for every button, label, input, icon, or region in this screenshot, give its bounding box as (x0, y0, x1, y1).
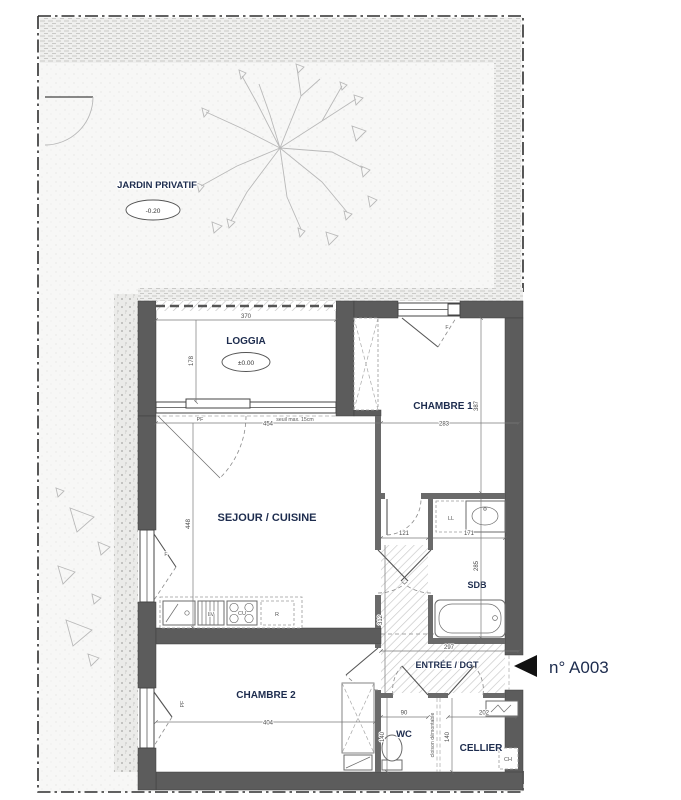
demountable-partition-note: cloison démontable (430, 713, 436, 758)
sejour-window-tag: F (164, 552, 167, 558)
chambre2-label: CHAMBRE 2 (236, 690, 296, 701)
washbasin (466, 501, 505, 532)
fridge-tag: R (275, 612, 279, 618)
hedge-building-edge (138, 288, 523, 301)
kitchen-block: LV CU R (160, 597, 302, 628)
chambre1-closet (354, 318, 378, 410)
dim-cellier-depth: 140 (445, 731, 451, 742)
water-heater-tag: CH (504, 757, 512, 763)
kitchen-sink (163, 601, 195, 625)
unit-callout: n° A003 (514, 655, 609, 677)
loggia-level: ±0.00 (238, 360, 255, 367)
washing-machine: LL (436, 501, 466, 532)
garden-label: JARDIN PRIVATIF (117, 180, 197, 191)
hedge-top (40, 18, 521, 63)
threshold-note: seuil max. 15cm (276, 417, 313, 423)
dim-sejour-width: 454 (263, 422, 274, 428)
dim-chambre2-width: 404 (263, 721, 274, 727)
wc-label: WC (396, 729, 412, 740)
chambre2-closet (342, 683, 374, 770)
washing-machine-tag: LL (448, 516, 454, 522)
loggia-label: LOGGIA (226, 336, 265, 347)
hedge-right (494, 63, 521, 289)
cooktop-tag: CU (238, 611, 246, 617)
cellier-label: CELLIER (460, 743, 504, 754)
loggia-bay-window (156, 399, 336, 416)
dim-sdb-width: 171 (464, 531, 475, 537)
entree-label: ENTRÉE / DGT (415, 660, 479, 670)
bathtub (435, 600, 505, 637)
cooktop: CU (227, 601, 257, 625)
dim-entree-depth: 312 (378, 614, 384, 625)
dim-chambre1-width: 283 (439, 422, 450, 428)
unit-number: n° A003 (549, 658, 609, 677)
entry-symbol-box (486, 701, 518, 716)
garden-level: -0.20 (146, 208, 161, 215)
floor-plan: JARDIN PRIVATIF -0.20 (0, 0, 681, 800)
dim-entree-width: 297 (444, 645, 455, 651)
chambre1-window-tag: F (445, 325, 448, 331)
loggia-window-tag: PF (197, 417, 204, 423)
floor-plan-page: JARDIN PRIVATIF -0.20 (0, 0, 681, 800)
dim-wc-width: 90 (401, 711, 408, 717)
chambre1-label: CHAMBRE 1 (413, 401, 473, 412)
gravel-strip (114, 294, 138, 772)
dishwasher: LV (198, 601, 224, 625)
chambre2-window-tag: PF (180, 701, 186, 708)
dim-loggia-width: 370 (241, 314, 252, 320)
dim-wc-depth: 140 (380, 731, 386, 742)
sejour-label: SEJOUR / CUISINE (217, 512, 316, 524)
dishwasher-tag: LV (208, 612, 215, 618)
dim-sdb-depth: 285 (474, 560, 480, 571)
dim-loggia-depth: 178 (189, 355, 195, 366)
dim-sejour-depth: 448 (186, 518, 192, 529)
sdb-label: SDB (467, 580, 487, 590)
building: cloison démontable LOGGIA ±0.00 PF seuil… (138, 288, 523, 790)
dim-cellier-width: 202 (479, 711, 490, 717)
dim-hall-width: 121 (399, 531, 410, 537)
dim-chambre1-depth: 387 (474, 400, 480, 411)
fridge: R (261, 601, 294, 625)
